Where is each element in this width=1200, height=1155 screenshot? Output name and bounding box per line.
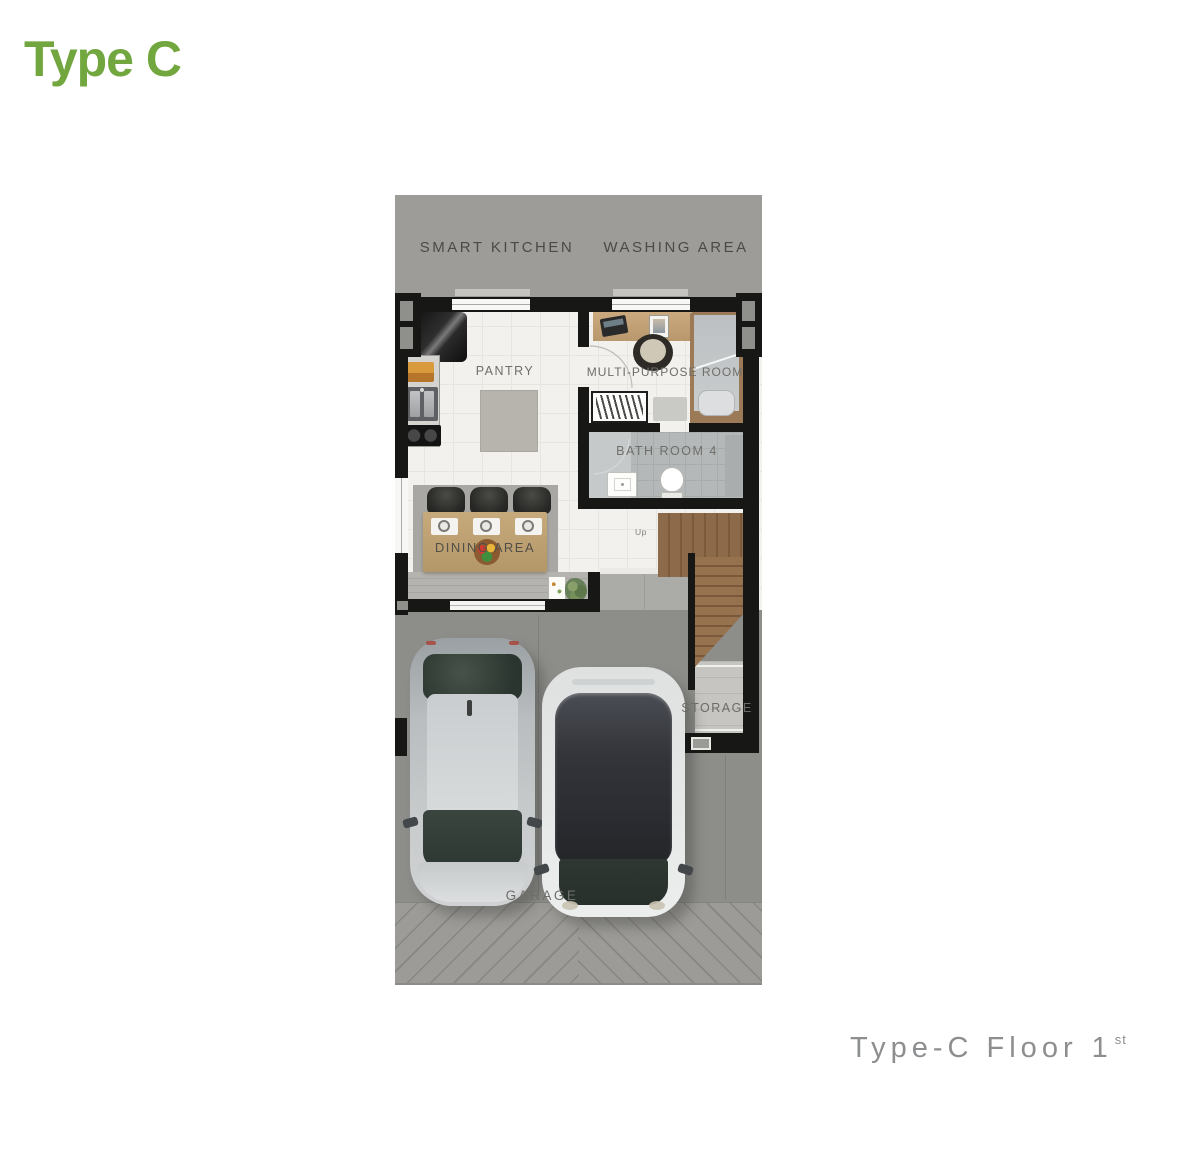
storage-shelf-edge [695, 665, 743, 667]
room-label-washing-area: WASHING AREA [596, 239, 756, 256]
car-roof [555, 693, 672, 865]
taillight-icon [509, 641, 519, 645]
kitchen-sink-icon [406, 387, 438, 421]
wall-top [395, 297, 762, 312]
sliding-door-line [450, 605, 545, 606]
place-setting [431, 518, 458, 535]
caption-text: Type-C Floor [850, 1032, 1078, 1064]
wall-right [743, 293, 759, 753]
wall-bathroom-top [589, 423, 660, 432]
pillar-inset [400, 327, 413, 349]
laptop-icon [600, 315, 629, 337]
sink-basin [424, 391, 434, 417]
window-top-right [612, 299, 690, 310]
pillar-inset [742, 301, 755, 321]
headlight-icon [649, 901, 665, 910]
wall-bathroom-bottom [578, 498, 759, 509]
wall-garage-left-stub [395, 718, 407, 756]
books [596, 395, 643, 419]
plate-icon [438, 520, 450, 532]
wall-pantry-divider [578, 312, 589, 347]
laptop-screen [603, 318, 624, 327]
sliding-door [450, 601, 545, 610]
storage-floor [695, 661, 743, 735]
page: Type C [0, 0, 1200, 1155]
antenna-icon [467, 700, 472, 716]
faucet-icon [420, 388, 424, 392]
driveway-pattern-left [395, 903, 579, 983]
caption-ordinal: st [1115, 1032, 1127, 1047]
window-sill [455, 289, 530, 296]
caption-floor-number: 1 [1092, 1032, 1113, 1064]
floor-mat [653, 397, 687, 421]
page-title: Type C [24, 30, 181, 88]
room-label-dining-area: DINING AREA [419, 540, 551, 555]
toilet-bowl [660, 467, 684, 492]
place-setting [515, 518, 542, 535]
cutting-board-icon [407, 362, 434, 382]
room-label-smart-kitchen: SMART KITCHEN [417, 239, 577, 256]
washbasin-drain [621, 483, 624, 486]
window-frame-line [612, 304, 690, 305]
pillow-icon [698, 390, 735, 416]
window-frame-line [401, 478, 402, 553]
floor-caption: Type-C Floor1st [850, 1032, 1127, 1065]
car-windshield [423, 810, 522, 868]
pillar-inset [742, 327, 755, 349]
window-sill [613, 289, 688, 296]
room-label-bath-room-4: BATH ROOM 4 [587, 444, 747, 458]
room-label-multi-purpose-room: MULTI-PURPOSE ROOM [581, 365, 749, 379]
room-label-storage: STORAGE [657, 701, 777, 715]
car-roof [427, 694, 518, 816]
car-left [410, 638, 535, 906]
window-frame-line [452, 304, 530, 305]
wall-bathroom-top [689, 423, 743, 432]
room-label-garage: GARAGE [472, 888, 612, 903]
dining-chair [470, 487, 508, 514]
taillight-icon [426, 641, 436, 645]
desk-chair-seat [640, 339, 666, 363]
bookshelf-icon [591, 391, 648, 423]
plate-icon [522, 520, 534, 532]
window-top-left [452, 299, 530, 310]
stove-icon [404, 425, 441, 446]
dining-chair [513, 487, 551, 514]
floor-plan: SMART KITCHEN WASHING AREA PANTRY MULTI-… [395, 195, 762, 985]
parking-divider-line [725, 755, 726, 900]
path-joint-line [644, 574, 645, 610]
wall-stair-divider [688, 553, 695, 690]
pantry-rug [480, 390, 538, 452]
dining-chair [427, 487, 465, 514]
window-left [395, 478, 408, 553]
pillar-inset [400, 301, 413, 321]
room-label-pantry: PANTRY [445, 364, 565, 378]
storage-shelf-edge [695, 729, 743, 731]
place-setting [473, 518, 500, 535]
pillar-inset [397, 601, 408, 610]
paper-print [653, 319, 665, 333]
storage-pillar [691, 737, 711, 750]
car-rear-chrome [572, 679, 655, 685]
concrete-path [600, 574, 688, 610]
plate-icon [480, 520, 492, 532]
sink-basin [410, 391, 420, 417]
toilet-icon [657, 467, 687, 500]
parking-divider-line [538, 615, 539, 900]
wall-stub [588, 572, 600, 612]
stairs-up-label: Up [635, 527, 647, 537]
